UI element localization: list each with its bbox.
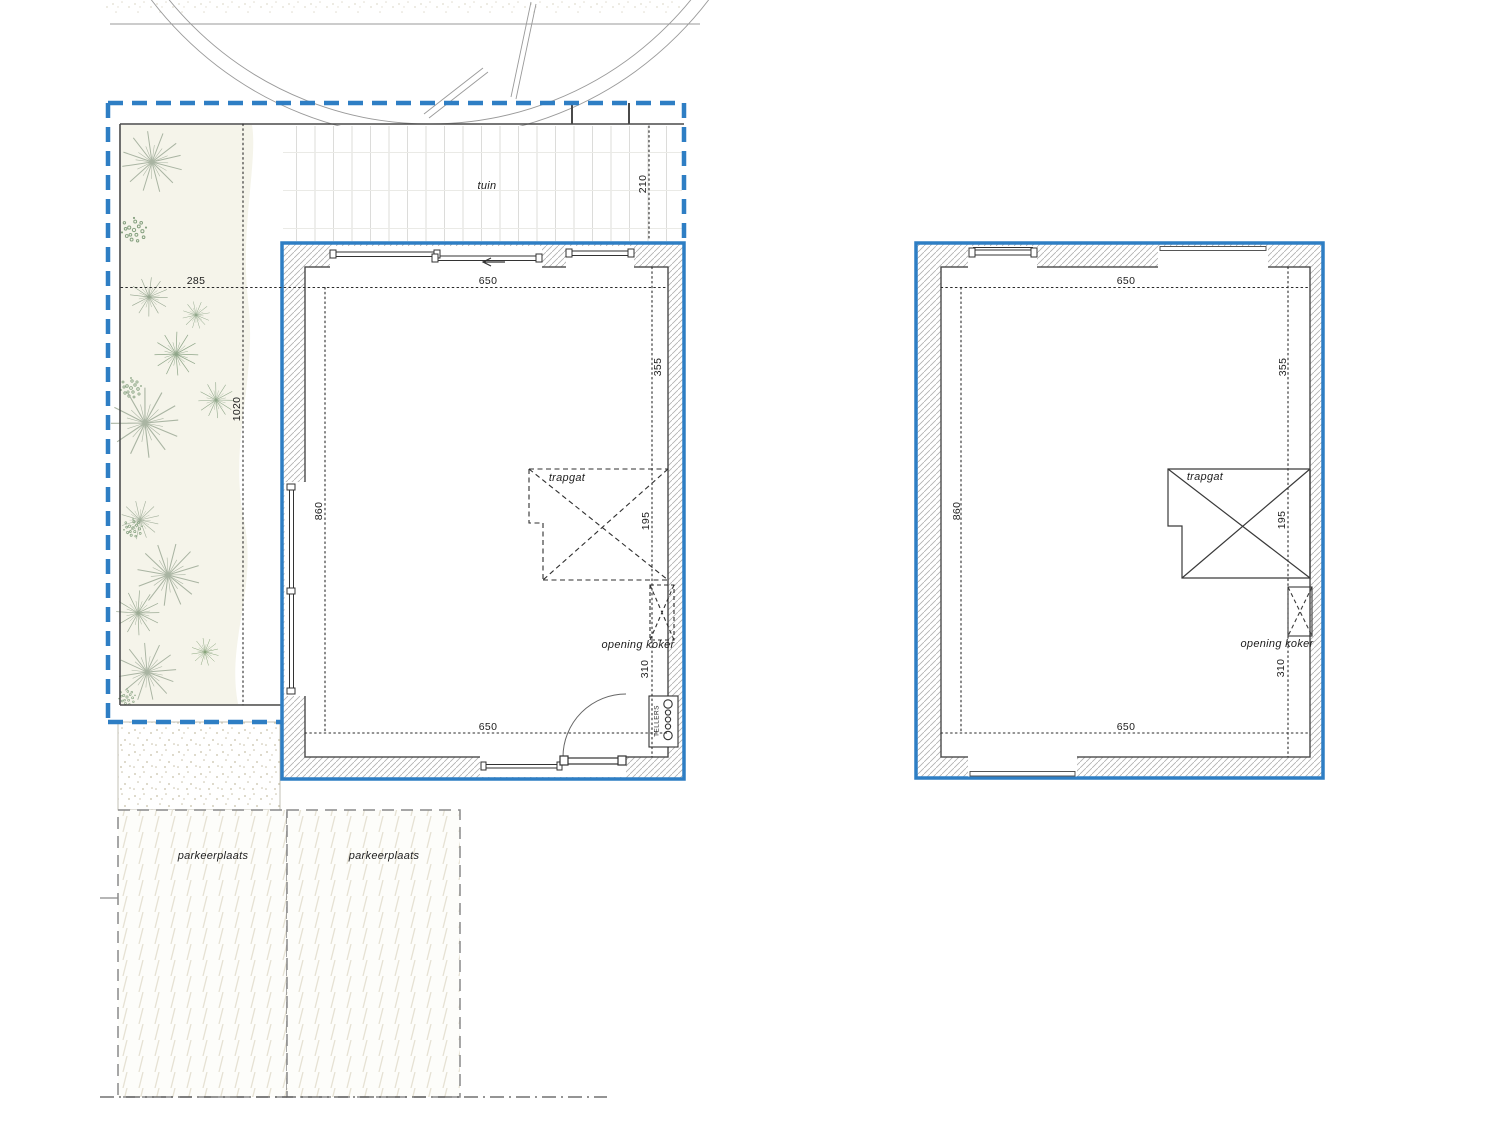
upper-floor-building (916, 243, 1323, 778)
dim-upper-right-upper: 355 (1277, 358, 1289, 376)
dim-ground-right-upper: 355 (652, 358, 664, 376)
window-upper-bottom (970, 772, 1075, 777)
label-koker-upper: opening koker (1240, 638, 1313, 650)
label-parking-1: parkeerplaats (178, 850, 249, 862)
dim-site-width: 285 (187, 275, 205, 287)
label-koker-ground: opening koker (601, 639, 674, 651)
dim-upper-height-left: 860 (951, 502, 963, 520)
label-parking-2: parkeerplaats (349, 850, 420, 862)
label-tuin: tuin (478, 180, 497, 192)
label-tellers: TELLERS (654, 705, 661, 737)
window-upper-top-right (1160, 247, 1266, 251)
dim-ground-width-bottom: 650 (479, 721, 497, 733)
dim-ground-width-top: 650 (479, 275, 497, 287)
plans-drawing (0, 0, 1500, 1126)
dim-terrace-depth: 210 (637, 175, 649, 193)
floorplan-canvas: tuin 285 650 210 1020 860 355 195 310 65… (0, 0, 1500, 1126)
site-context-decor (80, 0, 780, 138)
dim-ground-right-stair: 195 (640, 512, 652, 530)
dim-upper-right-lower: 310 (1275, 659, 1287, 677)
dim-upper-width-bottom: 650 (1117, 721, 1135, 733)
dim-upper-width-top: 650 (1117, 275, 1135, 287)
dim-upper-right-stair: 195 (1276, 511, 1288, 529)
dim-ground-height-left: 860 (313, 502, 325, 520)
dim-ground-right-lower: 310 (639, 660, 651, 678)
dim-site-depth: 1020 (231, 397, 243, 422)
label-trapgat-upper: trapgat (1187, 471, 1223, 483)
label-trapgat-ground: trapgat (549, 472, 585, 484)
